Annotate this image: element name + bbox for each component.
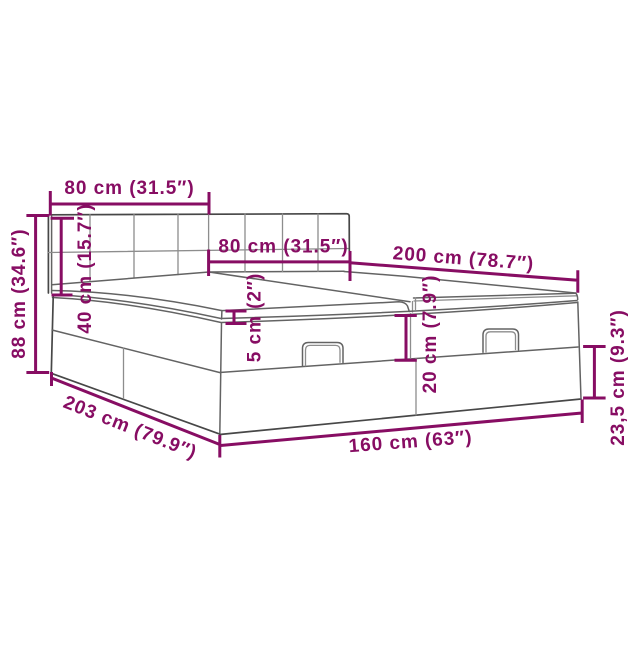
svg-text:20 cm (7.9″): 20 cm (7.9″) — [420, 275, 441, 394]
svg-text:40 cm (15.7″): 40 cm (15.7″) — [75, 203, 96, 333]
svg-text:23,5 cm (9.3″): 23,5 cm (9.3″) — [608, 309, 629, 445]
svg-text:80 cm (31.5″): 80 cm (31.5″) — [64, 178, 194, 199]
svg-text:5 cm (2″): 5 cm (2″) — [245, 273, 266, 362]
svg-text:88 cm (34.6″): 88 cm (34.6″) — [9, 228, 30, 358]
svg-text:80 cm (31.5″): 80 cm (31.5″) — [218, 237, 348, 258]
